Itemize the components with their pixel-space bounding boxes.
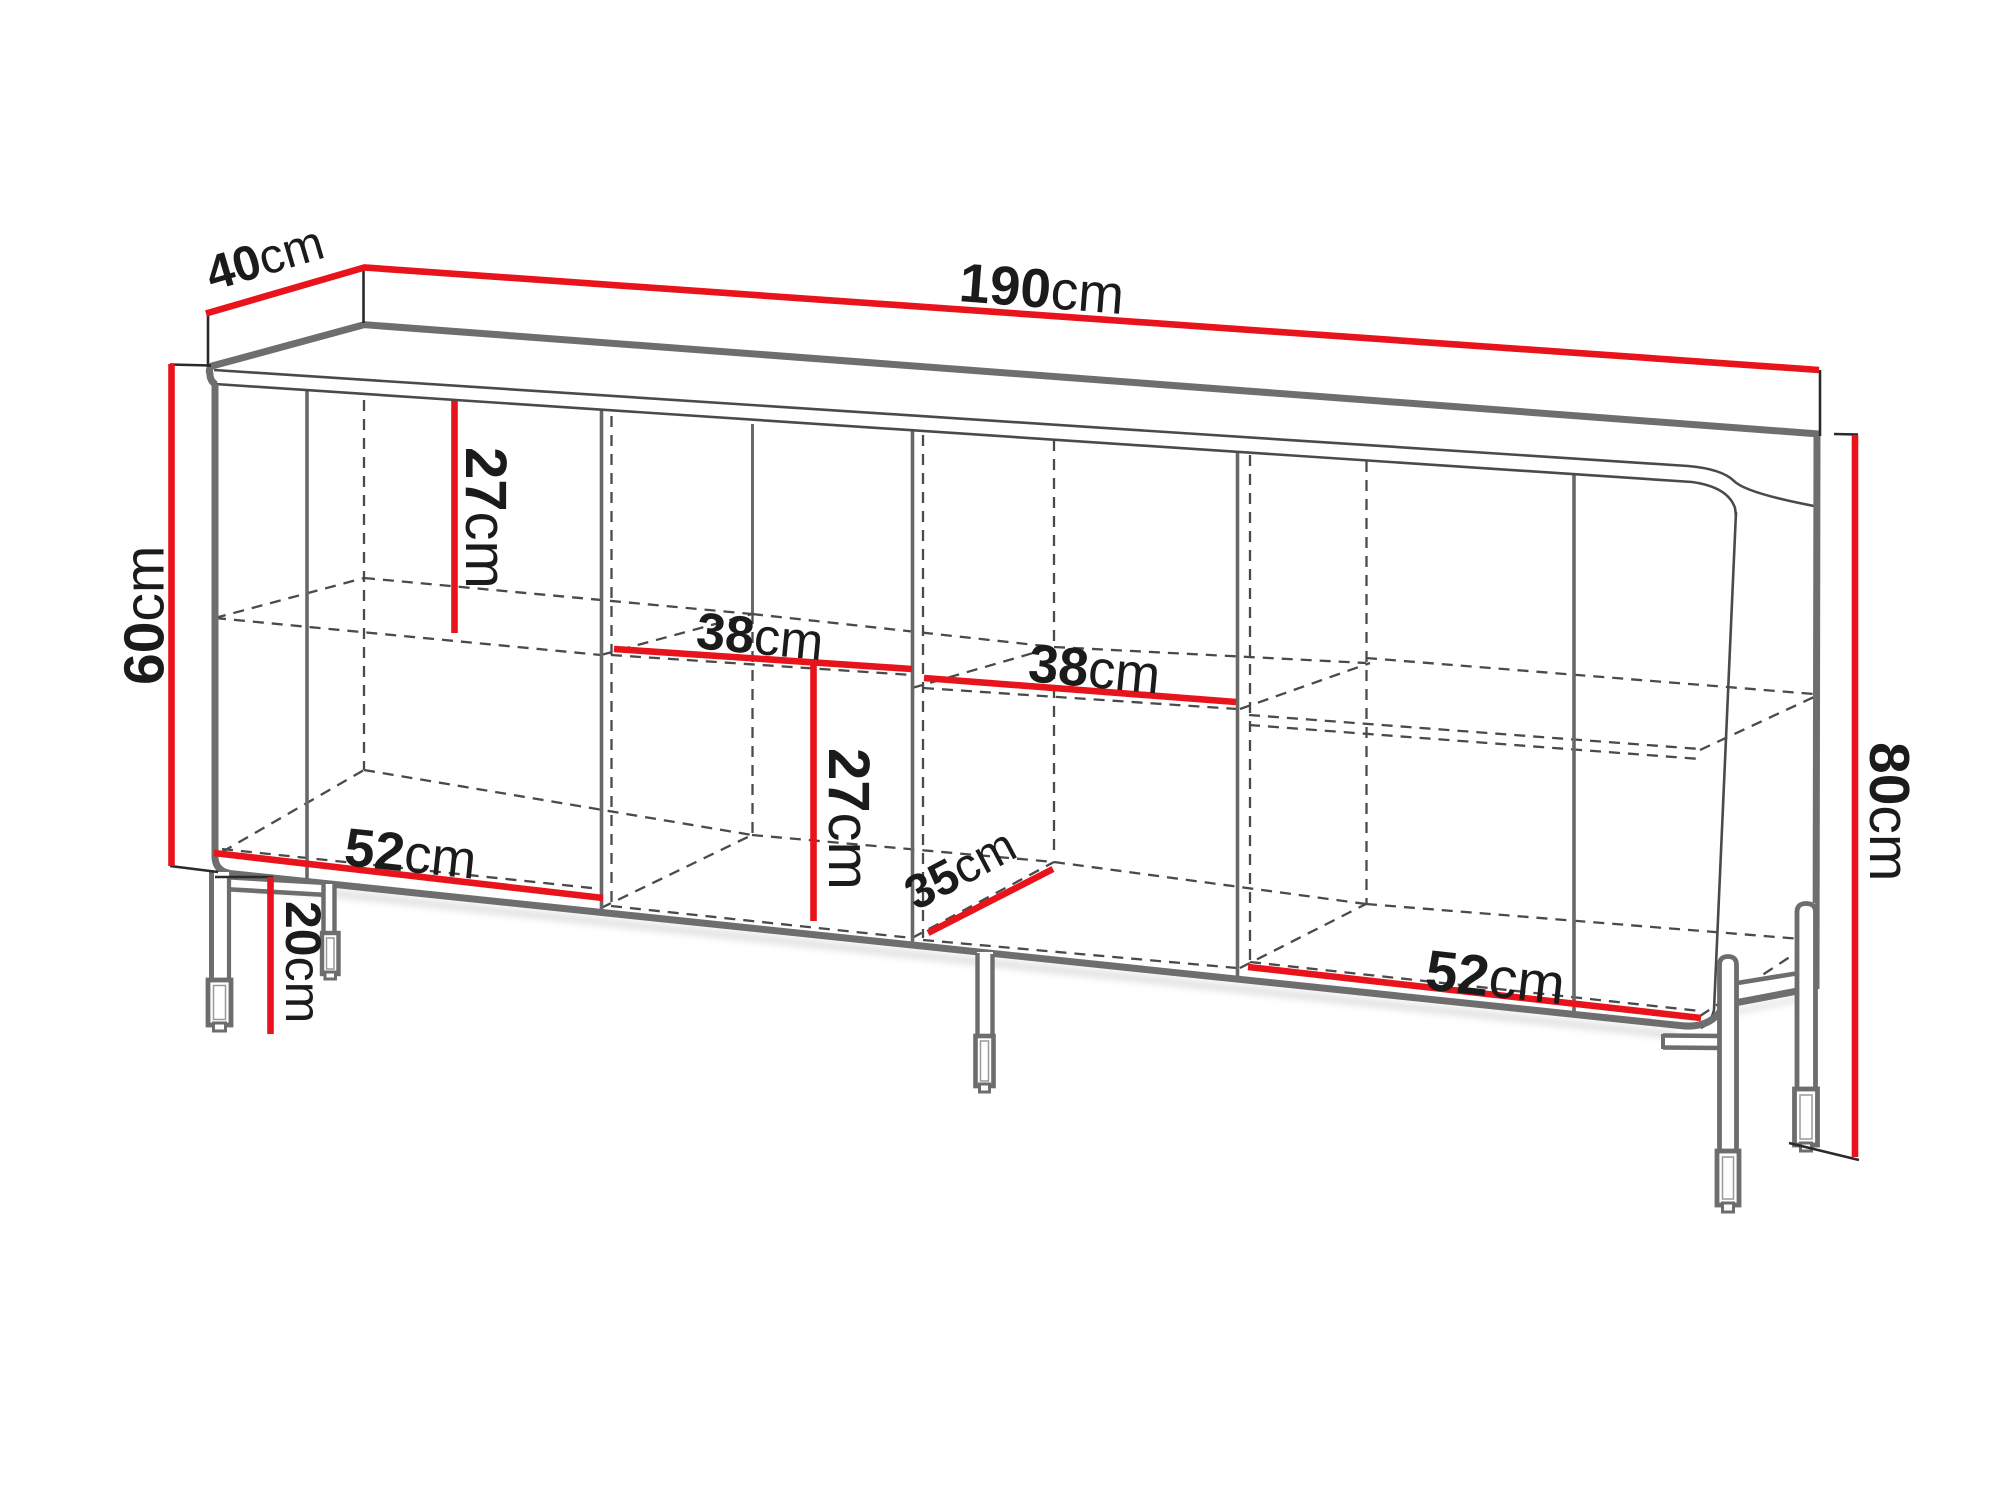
svg-text:80cm: 80cm [1857, 742, 1921, 881]
svg-text:20cm: 20cm [275, 901, 331, 1023]
svg-text:60cm: 60cm [113, 546, 177, 685]
svg-text:27cm: 27cm [816, 748, 881, 890]
svg-text:190cm: 190cm [957, 251, 1126, 326]
svg-text:27cm: 27cm [453, 447, 518, 589]
svg-text:38cm: 38cm [694, 602, 826, 672]
svg-text:38cm: 38cm [1026, 633, 1163, 705]
